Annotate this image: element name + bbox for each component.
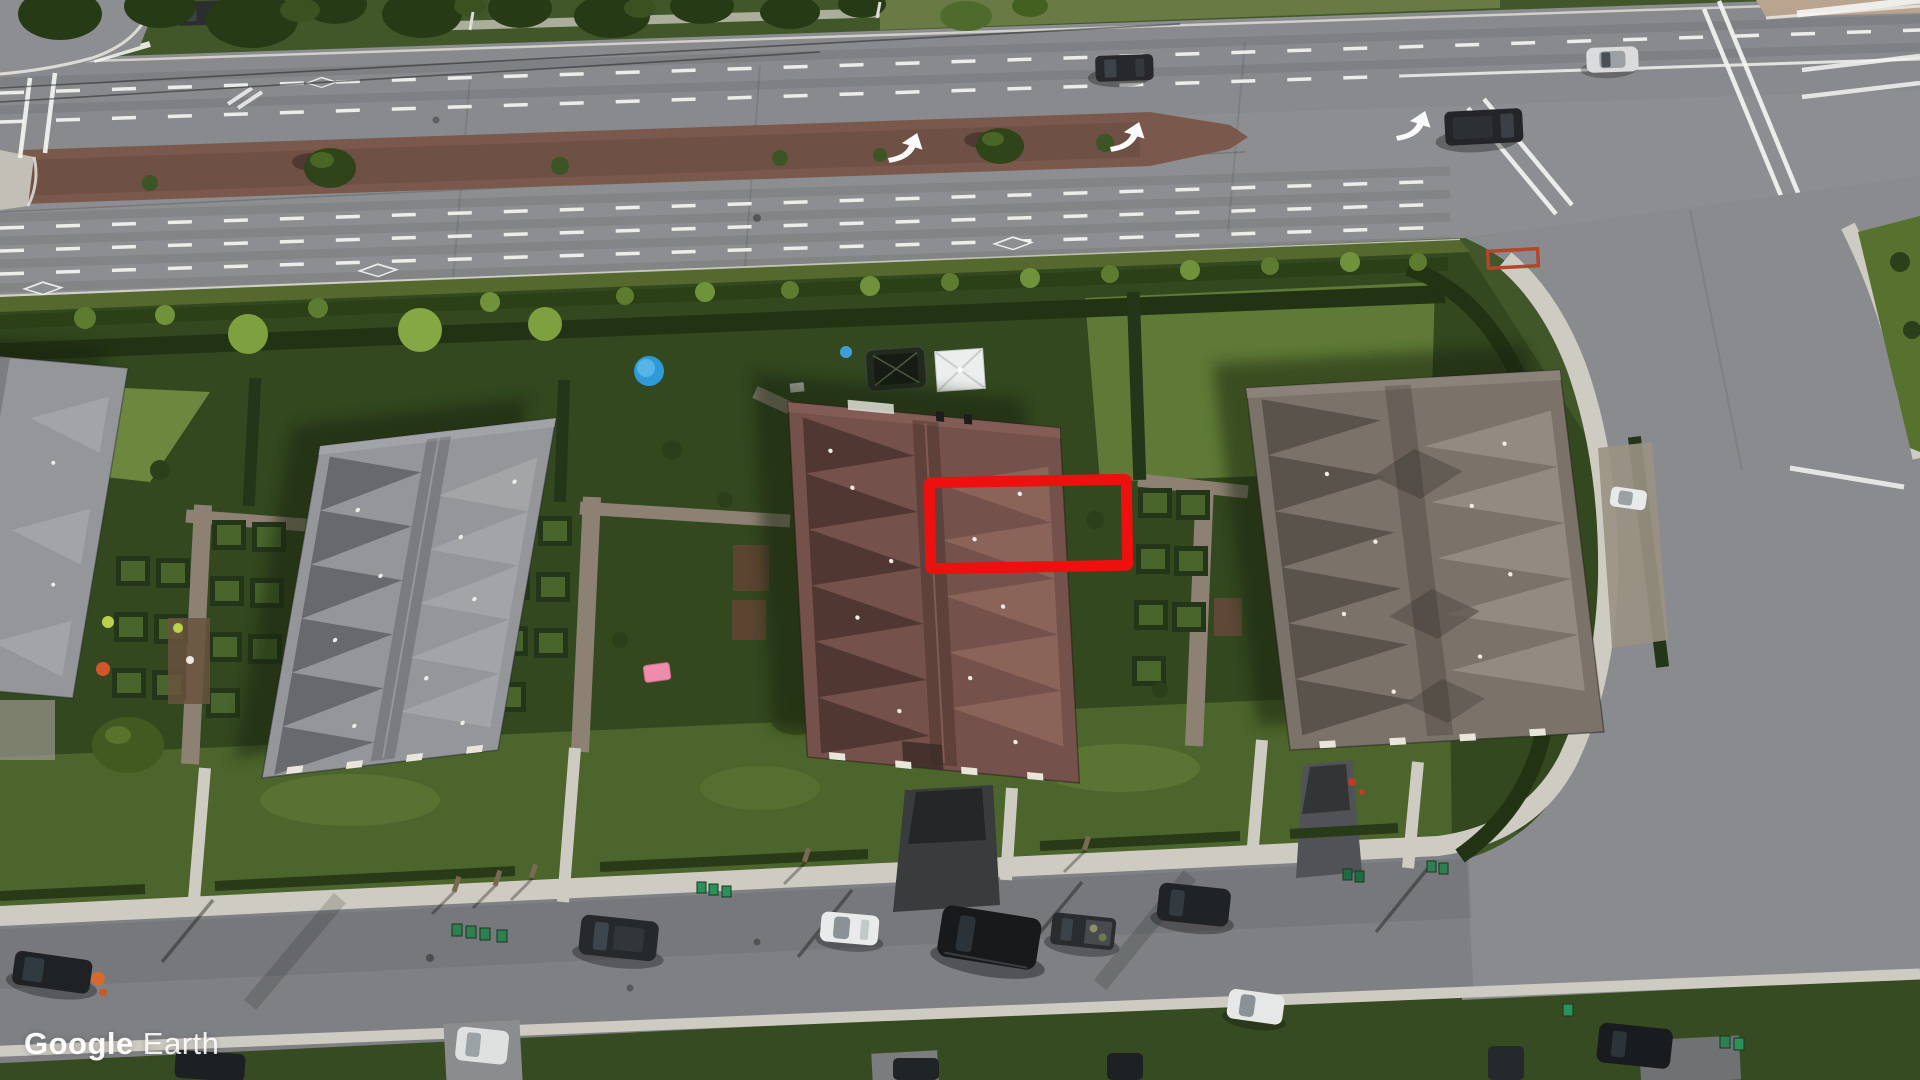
google-earth-viewport: GoogleEarth [0, 0, 1920, 1080]
google-earth-watermark: GoogleEarth [24, 1026, 219, 1062]
blue-ball [840, 346, 852, 358]
orange-object [96, 662, 110, 676]
aerial-imagery-canvas[interactable] [0, 0, 1920, 1080]
watermark-product: Earth [143, 1026, 220, 1061]
building-right [1213, 344, 1604, 753]
car-silver [1580, 46, 1639, 79]
pink-object [643, 662, 671, 682]
watermark-brand: Google [24, 1026, 134, 1061]
white-canopy-tent [935, 348, 986, 391]
building-middle [753, 373, 1080, 785]
